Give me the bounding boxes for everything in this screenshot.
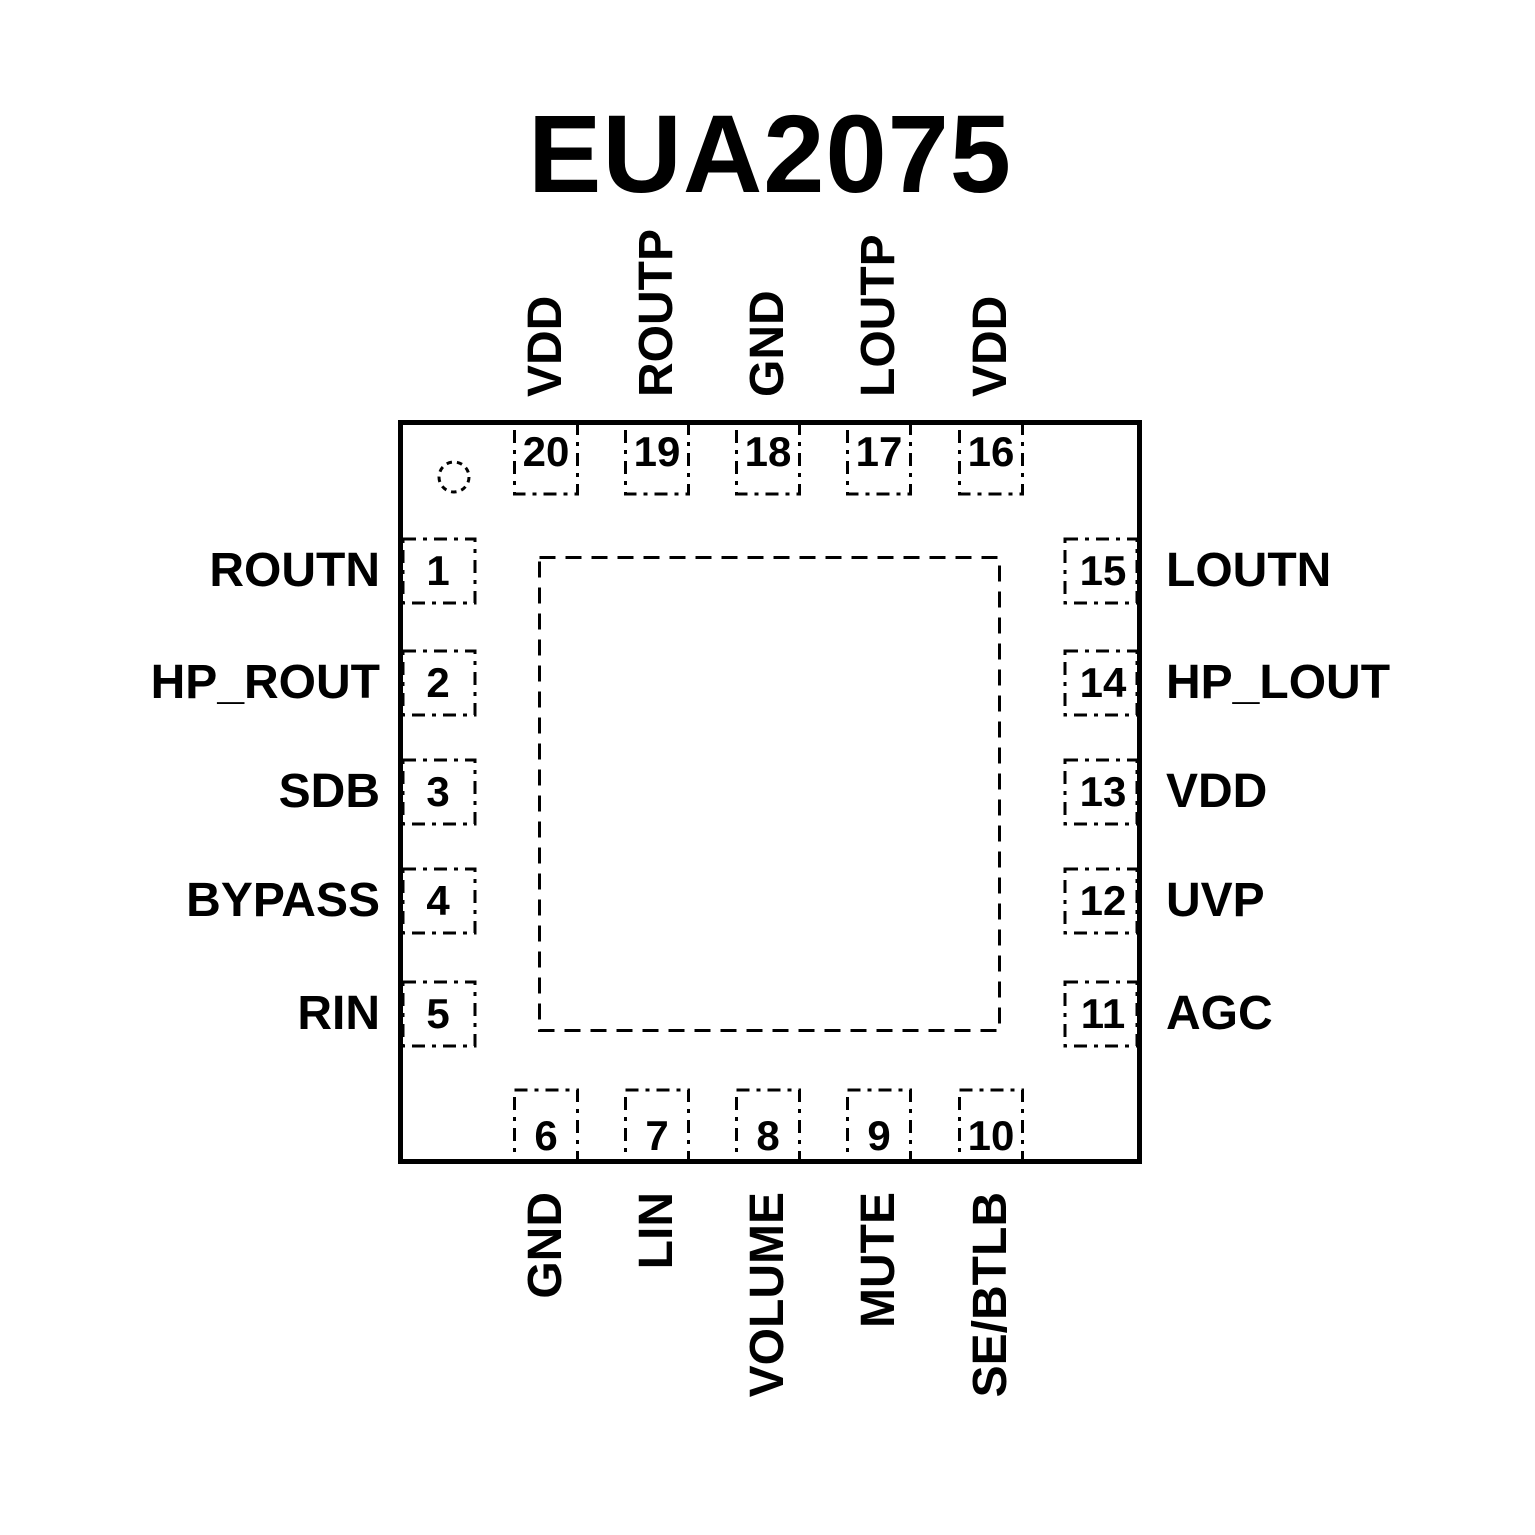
pin-number-1: 1 bbox=[406, 547, 470, 595]
pin-label-20: VDD bbox=[519, 97, 573, 397]
pin-label-10: SE/BTLB bbox=[964, 1192, 1018, 1492]
pin-number-3: 3 bbox=[406, 768, 470, 816]
pin-label-2: HP_ROUT bbox=[151, 656, 380, 710]
pin-label-16: VDD bbox=[964, 97, 1018, 397]
pin-label-7: LIN bbox=[630, 1192, 684, 1492]
pin-label-17: LOUTP bbox=[852, 97, 906, 397]
pin-label-4: BYPASS bbox=[186, 874, 380, 928]
pin-label-12: UVP bbox=[1166, 874, 1265, 928]
pin-label-19: ROUTP bbox=[630, 97, 684, 397]
pin-label-8: VOLUME bbox=[741, 1192, 795, 1492]
pin-label-14: HP_LOUT bbox=[1166, 656, 1390, 710]
pin-number-19: 19 bbox=[625, 428, 689, 476]
pin-number-6: 6 bbox=[514, 1112, 578, 1160]
pin-boxes bbox=[403, 423, 1137, 1161]
pin-number-8: 8 bbox=[736, 1112, 800, 1160]
pin-number-16: 16 bbox=[959, 428, 1023, 476]
pin1-indicator bbox=[439, 462, 469, 492]
pin-number-15: 15 bbox=[1071, 547, 1135, 595]
pin-label-1: ROUTN bbox=[209, 544, 380, 598]
pin-label-11: AGC bbox=[1166, 987, 1273, 1041]
chip-body bbox=[401, 423, 1140, 1162]
pin-number-9: 9 bbox=[847, 1112, 911, 1160]
pin-label-9: MUTE bbox=[852, 1192, 906, 1492]
thermal-pad bbox=[540, 558, 1000, 1031]
pin-number-13: 13 bbox=[1071, 768, 1135, 816]
pin-number-20: 20 bbox=[514, 428, 578, 476]
pin-number-17: 17 bbox=[847, 428, 911, 476]
pin-number-5: 5 bbox=[406, 990, 470, 1038]
pin-label-3: SDB bbox=[279, 765, 380, 819]
pin-label-15: LOUTN bbox=[1166, 544, 1331, 598]
pin-number-14: 14 bbox=[1071, 659, 1135, 707]
pin-label-18: GND bbox=[741, 97, 795, 397]
pin-label-5: RIN bbox=[297, 987, 380, 1041]
pin-number-7: 7 bbox=[625, 1112, 689, 1160]
pin-number-10: 10 bbox=[959, 1112, 1023, 1160]
pin-number-4: 4 bbox=[406, 877, 470, 925]
pinout-diagram: EUA2075 20VDD19ROUTP18GND17LOUTP16VDD6GN… bbox=[0, 0, 1535, 1535]
pin-label-6: GND bbox=[519, 1192, 573, 1492]
pin-label-13: VDD bbox=[1166, 765, 1267, 819]
pin-number-11: 11 bbox=[1071, 990, 1135, 1038]
pin-number-2: 2 bbox=[406, 659, 470, 707]
pin-number-18: 18 bbox=[736, 428, 800, 476]
pin-number-12: 12 bbox=[1071, 877, 1135, 925]
